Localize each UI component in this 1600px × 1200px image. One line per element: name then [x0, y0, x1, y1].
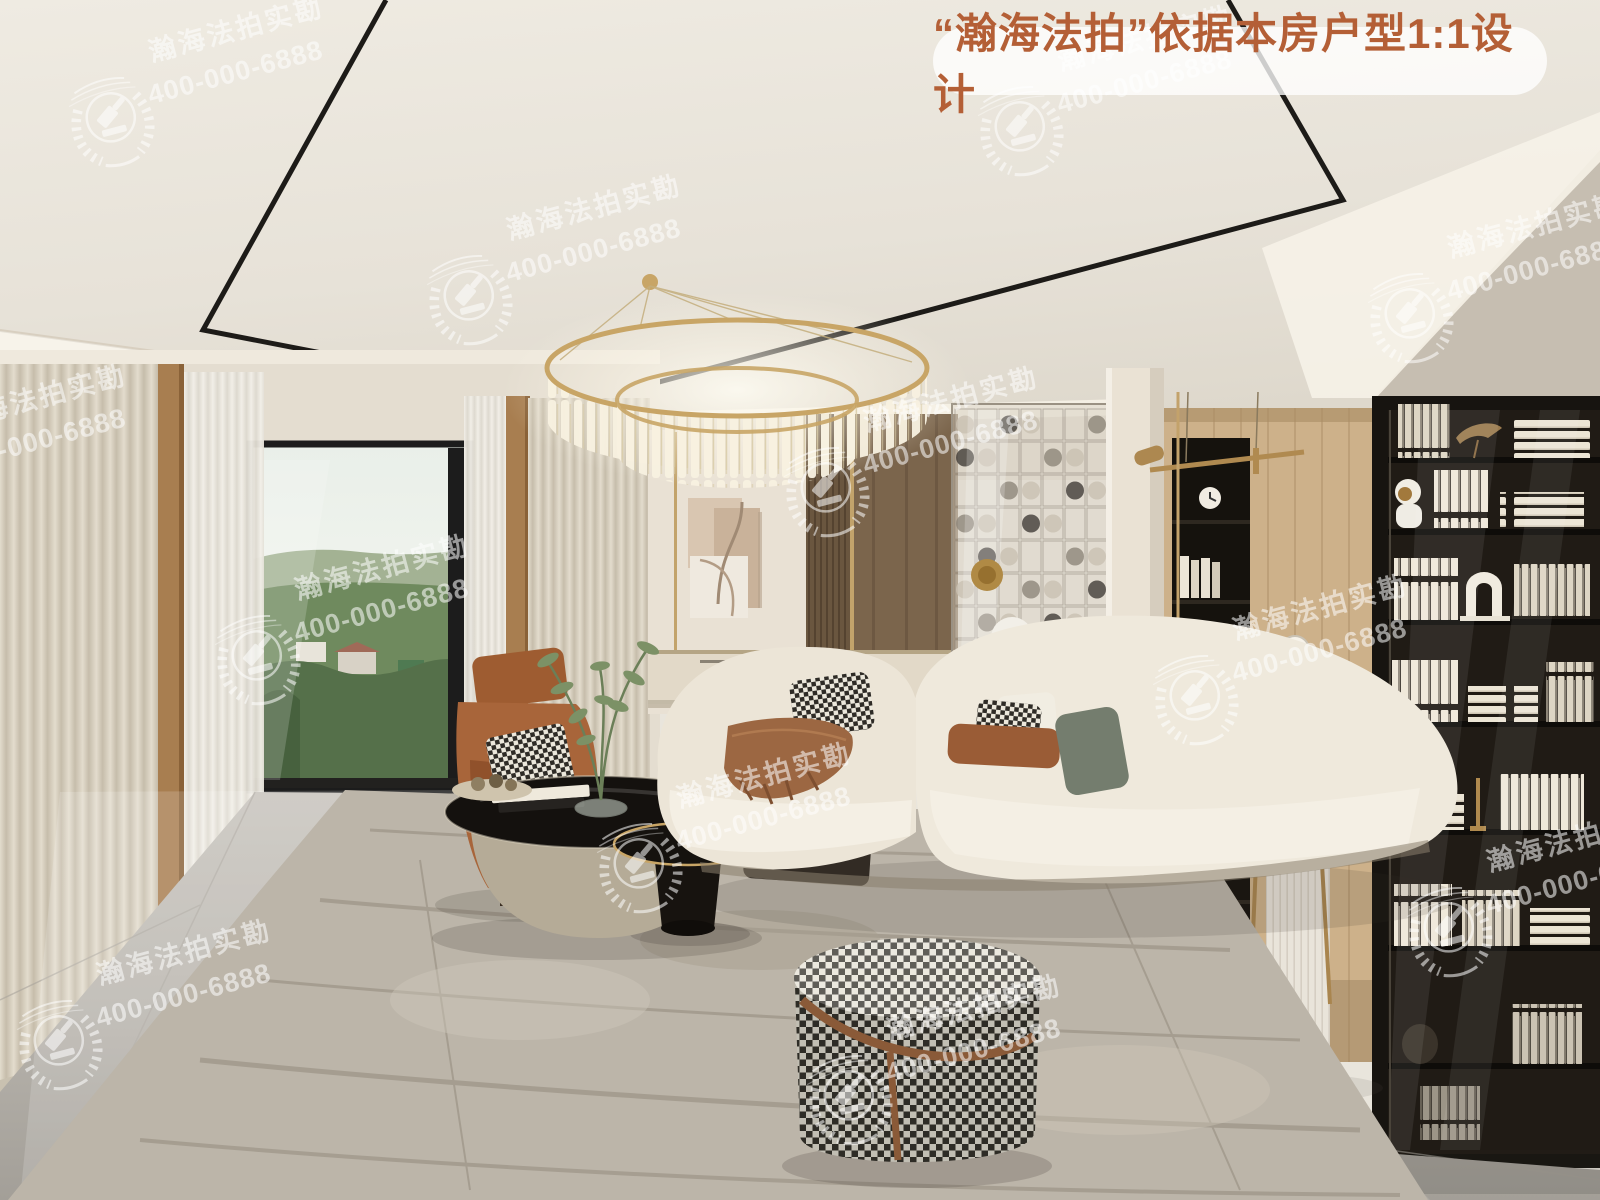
living-room-photo: “瀚海法拍”依据本房户型1:1设计 瀚海法拍实勘 400-000-6888 瀚海… — [0, 0, 1600, 1200]
pouf — [794, 938, 1040, 1162]
wall-art — [688, 498, 762, 618]
room-render — [0, 0, 1600, 1200]
brown-pillow — [947, 723, 1061, 769]
banner-text: “瀚海法拍”依据本房户型1:1设计 — [933, 0, 1547, 122]
sofa — [657, 616, 1457, 891]
design-banner: “瀚海法拍”依据本房户型1:1设计 — [933, 27, 1547, 95]
window — [235, 444, 470, 790]
